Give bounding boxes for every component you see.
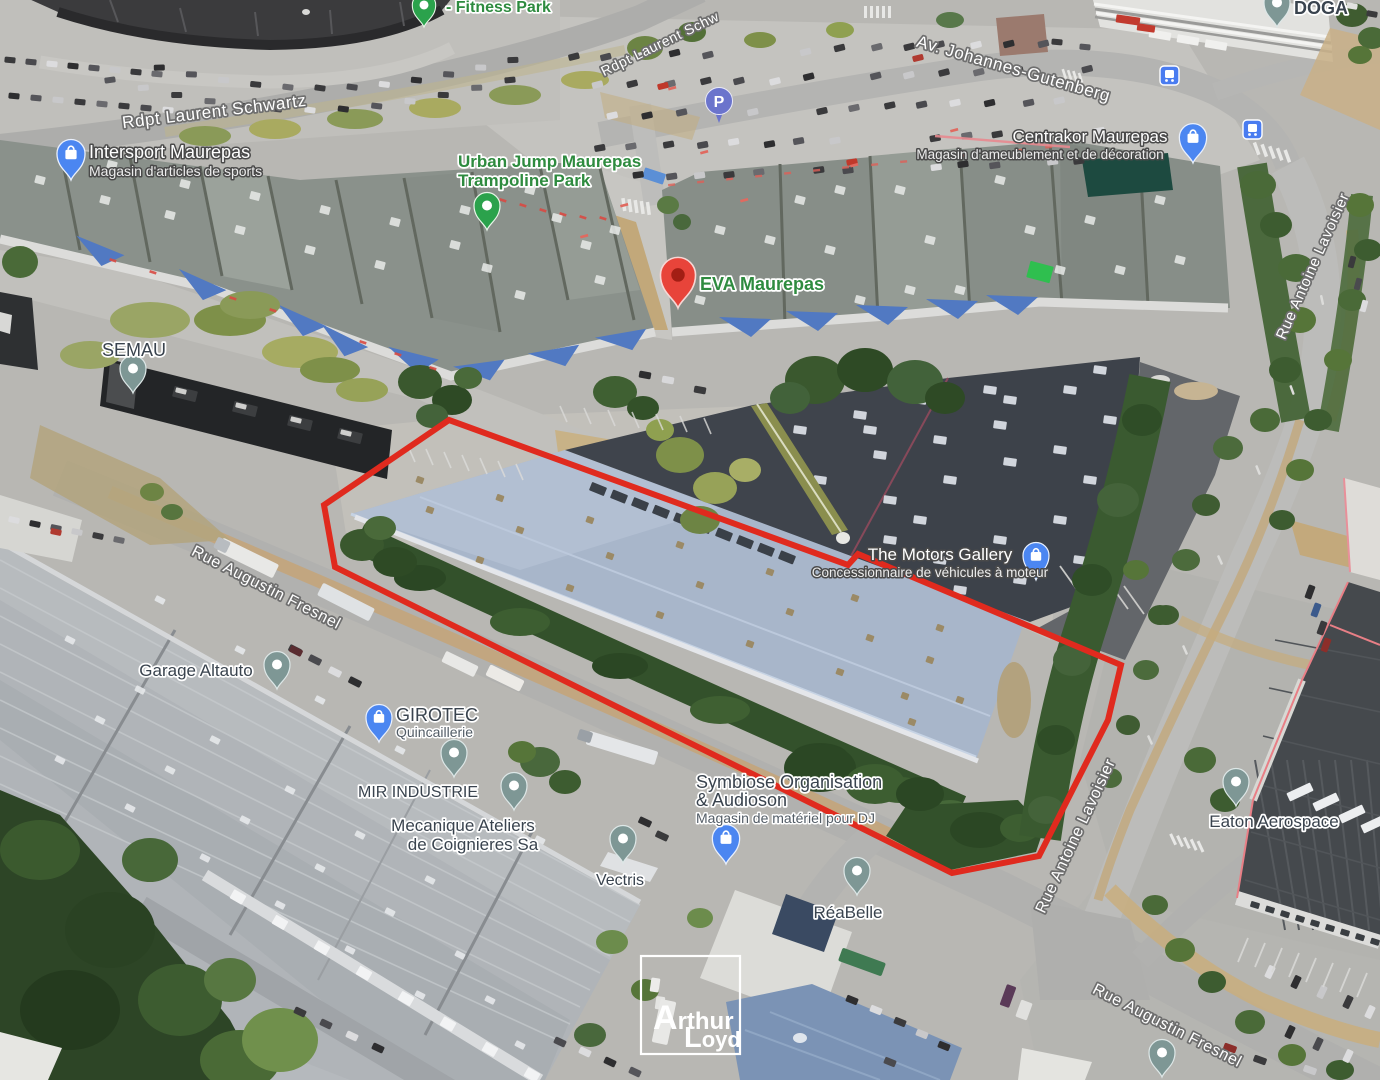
svg-text:Concessionnaire de véhicules à: Concessionnaire de véhicules à moteur: [812, 565, 1049, 580]
svg-text:Centrakor Maurepas: Centrakor Maurepas: [1013, 127, 1168, 146]
svg-text:MIR INDUSTRIE: MIR INDUSTRIE: [358, 784, 478, 801]
svg-text:Symbiose Organisation: Symbiose Organisation: [696, 772, 882, 792]
svg-text:Loyd: Loyd: [684, 1022, 741, 1054]
svg-text:Eaton Aerospace: Eaton Aerospace: [1209, 812, 1338, 831]
svg-text:DOGA: DOGA: [1294, 0, 1348, 18]
svg-text:Urban Jump Maurepas: Urban Jump Maurepas: [458, 152, 641, 171]
svg-text:Magasin de matériel pour DJ: Magasin de matériel pour DJ: [696, 810, 875, 826]
svg-text:Magasin d'ameublement et de dé: Magasin d'ameublement et de décoration: [916, 147, 1163, 162]
svg-text:Garage Altauto: Garage Altauto: [139, 661, 252, 680]
svg-text:Magasin d'articles de sports: Magasin d'articles de sports: [89, 163, 262, 179]
svg-text:Intersport Maurepas: Intersport Maurepas: [89, 142, 250, 162]
svg-text:& Audioson: & Audioson: [696, 790, 787, 810]
svg-text:Vectris: Vectris: [596, 872, 644, 889]
svg-text:Quincaillerie: Quincaillerie: [396, 724, 473, 740]
svg-text:The Motors Gallery: The Motors Gallery: [868, 545, 1013, 564]
svg-text:de Coignieres Sa: de Coignieres Sa: [408, 835, 539, 854]
svg-text:Trampoline Park: Trampoline Park: [458, 171, 591, 190]
svg-text:RéaBelle: RéaBelle: [814, 903, 883, 922]
svg-text:P: P: [714, 94, 725, 111]
svg-text:- Fitness Park: - Fitness Park: [446, 0, 551, 16]
svg-text:Mecanique Ateliers: Mecanique Ateliers: [391, 816, 535, 835]
svg-text:EVA Maurepas: EVA Maurepas: [700, 274, 824, 294]
svg-text:SEMAU: SEMAU: [102, 340, 166, 360]
svg-text:GIROTEC: GIROTEC: [396, 705, 478, 725]
